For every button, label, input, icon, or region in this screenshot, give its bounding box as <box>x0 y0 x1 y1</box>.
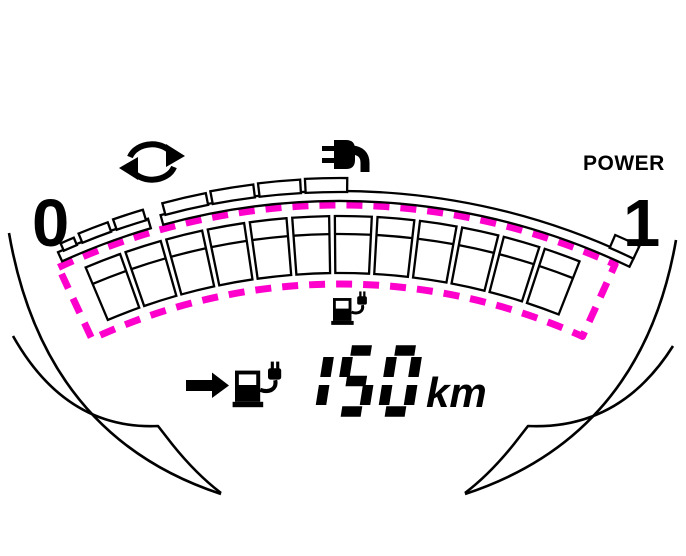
seven-segment-digit <box>339 351 374 412</box>
gauge-segment <box>335 216 372 274</box>
bezel-curve-left-inner <box>13 336 221 493</box>
range-unit-label: km <box>426 369 487 416</box>
seven-segment-digit <box>383 351 418 412</box>
power-label: POWER <box>583 152 665 175</box>
gauge-segment <box>413 221 457 283</box>
gauge-tick <box>258 180 301 197</box>
charging-station-icon <box>331 291 367 324</box>
cluster-illustration: 0 1 POWER km <box>0 0 686 556</box>
gauge-segment <box>208 223 253 285</box>
charging-station-icon-large <box>233 362 282 408</box>
seven-segment-digit <box>321 357 329 405</box>
gauge-segment <box>374 217 414 277</box>
range-value-digits <box>321 351 418 412</box>
gauge-segment <box>250 218 291 279</box>
charging-plug-icon <box>322 140 365 172</box>
gauge-segment-divider <box>335 234 371 235</box>
bezel-curve-right-inner <box>465 346 673 493</box>
gauge-min-label: 0 <box>32 186 69 261</box>
right-arrow-icon <box>186 373 229 399</box>
gauge-tick <box>305 178 347 193</box>
regen-arrows-icon <box>119 144 185 180</box>
gauge-max-label: 1 <box>623 186 660 261</box>
gauge-segment <box>292 216 330 275</box>
